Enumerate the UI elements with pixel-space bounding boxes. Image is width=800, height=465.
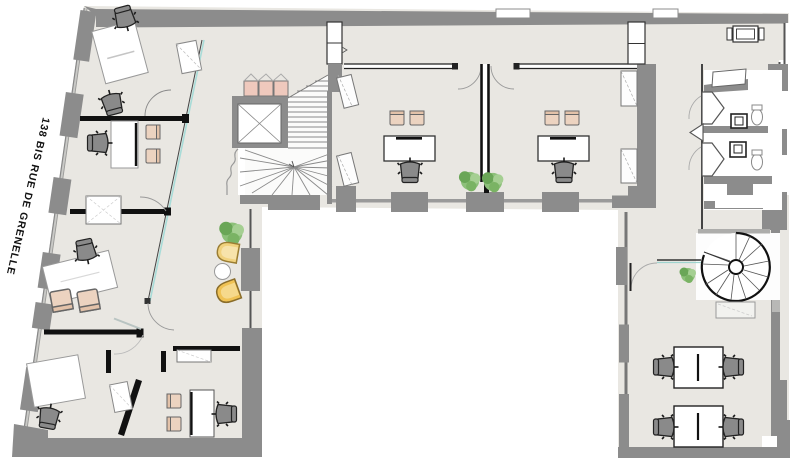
- svg-text:138 BIS RUE DE GRENELLE: 138 BIS RUE DE GRENELLE: [4, 116, 52, 276]
